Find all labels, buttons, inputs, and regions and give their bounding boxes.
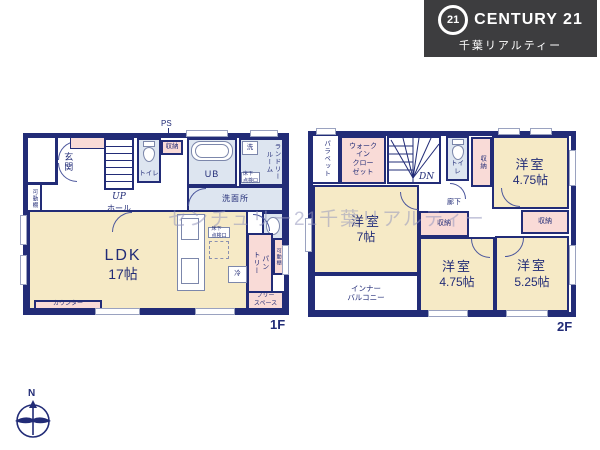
inner-balcony: インナー バルコニー bbox=[313, 274, 419, 312]
window bbox=[506, 310, 548, 317]
window bbox=[316, 128, 336, 135]
storage-2f-top: 収納 bbox=[471, 137, 492, 187]
compass-north-label: N bbox=[28, 388, 35, 401]
floor-hatch-1: 床下 点検口 bbox=[241, 172, 260, 183]
ldk-name: LDK bbox=[73, 246, 173, 266]
floor-hatch-2-outline bbox=[209, 241, 229, 259]
ps-tick bbox=[168, 128, 169, 134]
toilet-2f-label: トイレ bbox=[448, 160, 467, 176]
ps-label: PS bbox=[161, 119, 172, 129]
ldk-label-group: LDK 17帖 bbox=[73, 246, 173, 284]
pantry-label: パン トリー bbox=[251, 251, 269, 275]
pantry: パン トリー bbox=[247, 233, 273, 293]
window bbox=[530, 128, 552, 135]
movable-shelf-right-label: 可動棚 bbox=[275, 248, 281, 266]
laundry-room-label: ランドリー ルーム bbox=[264, 143, 280, 181]
parapet-label: パラペット bbox=[321, 140, 329, 178]
window bbox=[282, 245, 289, 275]
compass-icon: N bbox=[8, 392, 58, 444]
storage-2f-right-label: 収納 bbox=[538, 218, 552, 227]
storage-2f-right: 収納 bbox=[521, 210, 569, 234]
watermark-text: センチュリー21千葉リアルティー bbox=[168, 204, 486, 231]
bedroom-bc-name: 洋室 bbox=[442, 259, 472, 275]
window bbox=[569, 150, 576, 186]
century21-logo: 21 CENTURY 21 千葉リアルティー bbox=[424, 0, 597, 57]
floor1-caption: 1F bbox=[270, 317, 285, 332]
stairs-dn-label: DN bbox=[419, 172, 434, 183]
window bbox=[20, 255, 27, 285]
washroom-label: 洗面所 bbox=[222, 194, 249, 204]
entrance-label: 玄関 bbox=[62, 152, 73, 172]
bedroom-left-size: 7帖 bbox=[357, 230, 376, 245]
bedroom-br-size: 5.25帖 bbox=[514, 275, 549, 290]
logo-mark: 21 bbox=[447, 14, 459, 26]
storage-1f-label: 収納 bbox=[166, 143, 179, 151]
storage-1f: 収納 bbox=[161, 140, 183, 155]
window bbox=[186, 130, 228, 137]
inner-balcony-label: インナー バルコニー bbox=[347, 284, 384, 303]
window bbox=[250, 130, 278, 137]
door-arc bbox=[450, 183, 466, 199]
bedroom-tr-name: 洋室 bbox=[515, 157, 545, 173]
shoe-box bbox=[70, 138, 106, 149]
ldk-size: 17帖 bbox=[73, 266, 173, 284]
movable-shelf-left-label: 可動棚 bbox=[31, 189, 38, 209]
bedroom-tr-size: 4.75帖 bbox=[513, 173, 548, 188]
bedroom-br-name: 洋室 bbox=[517, 258, 547, 274]
window bbox=[569, 245, 576, 285]
floor-hatch-1-label: 床下 点検口 bbox=[243, 171, 258, 184]
fridge-icon: 冷 bbox=[228, 266, 247, 283]
logo-row: 21 CENTURY 21 bbox=[438, 5, 583, 35]
window bbox=[498, 128, 520, 135]
washing-machine-icon: 洗 bbox=[242, 141, 258, 155]
brand-subtitle: 千葉リアルティー bbox=[459, 37, 562, 53]
counter-label: カウンター bbox=[53, 301, 83, 309]
floor2-caption: 2F bbox=[557, 319, 572, 334]
entrance-closet bbox=[28, 138, 58, 185]
bathtub-inner-icon bbox=[195, 144, 229, 158]
parapet: パラペット bbox=[313, 136, 340, 184]
window bbox=[20, 215, 27, 245]
bath-label: UB bbox=[205, 169, 220, 180]
kitchen-stove-icon bbox=[181, 258, 199, 284]
free-space: フリー スペース bbox=[247, 291, 284, 310]
washer-label: 洗 bbox=[247, 144, 254, 152]
walk-in-closet-label: ウォーク イン クロー ゼット bbox=[349, 143, 377, 178]
window bbox=[195, 308, 235, 315]
storage-2f-top-label: 収納 bbox=[477, 155, 485, 170]
toilet-1f-label: トイレ bbox=[139, 170, 159, 178]
c21-ring-icon: 21 bbox=[438, 5, 468, 35]
stairs-up-label: UP bbox=[104, 192, 134, 203]
walk-in-closet: ウォーク イン クロー ゼット bbox=[340, 136, 386, 184]
window bbox=[95, 308, 140, 315]
free-space-label: フリー スペース bbox=[254, 293, 277, 308]
counter: カウンター bbox=[34, 300, 102, 310]
bedroom-bc-size: 4.75帖 bbox=[439, 275, 474, 290]
brand-name: CENTURY 21 bbox=[474, 11, 583, 29]
fridge-label: 冷 bbox=[234, 270, 241, 278]
stairs-1f bbox=[104, 138, 134, 190]
window bbox=[428, 310, 468, 317]
